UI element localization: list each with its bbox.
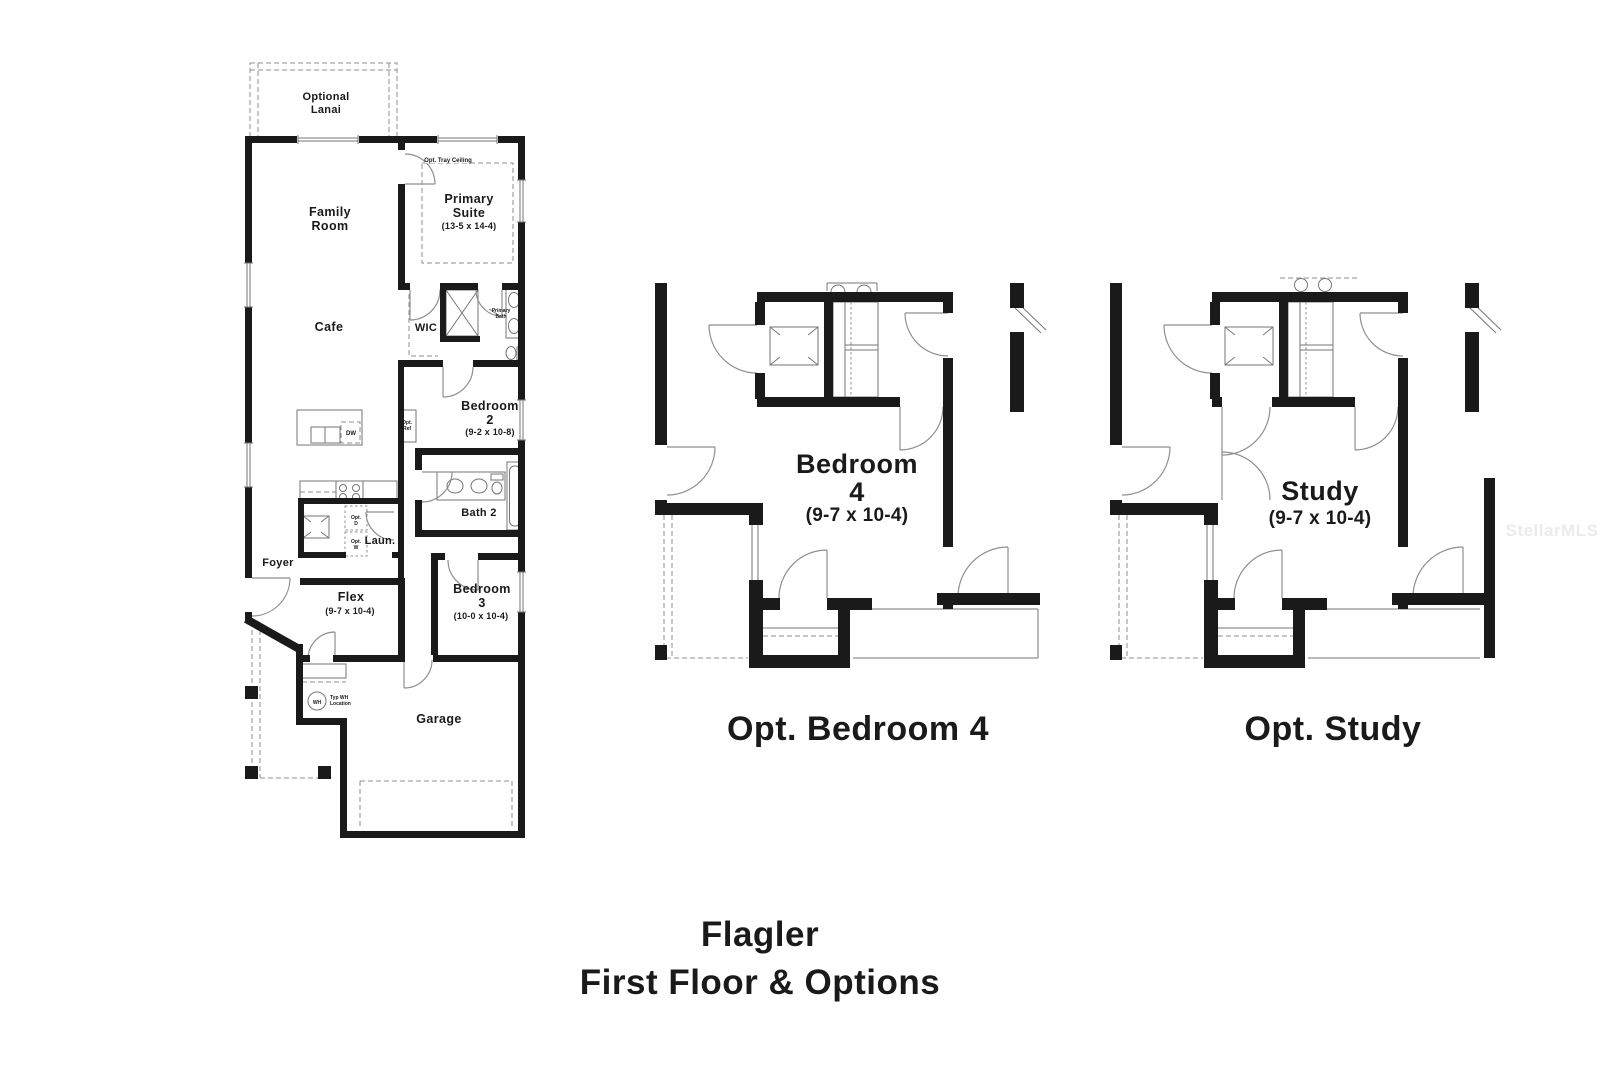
bedroom4-label2: 4 xyxy=(849,477,865,507)
porch-outline xyxy=(1113,515,1203,658)
garage-label: Garage xyxy=(416,712,461,726)
wh-note2: Location xyxy=(330,701,351,707)
bedroom3-label2: 3 xyxy=(478,596,485,610)
opt-d-label2: D xyxy=(354,521,358,527)
bedroom4-dims: (9-7 x 10-4) xyxy=(806,505,909,526)
primary-bath-label2: Bath xyxy=(495,314,506,320)
foyer-label: Foyer xyxy=(262,557,294,569)
dw-label: DW xyxy=(346,431,356,437)
floorplan-sheet: Optional Lanai Family Room Primary Suite… xyxy=(0,0,1600,1066)
cafe-label: Cafe xyxy=(315,320,344,334)
porch-outline xyxy=(658,515,748,658)
sheet-title: Flagler xyxy=(701,915,819,954)
shower xyxy=(446,290,478,336)
wic-label: WIC xyxy=(415,322,437,334)
tray-ceiling-label: Opt. Tray Ceiling xyxy=(424,158,472,164)
primary-suite-label2: Suite xyxy=(453,206,486,220)
opt-ref-label2: Ref xyxy=(403,426,411,432)
bedroom4-label: Bedroom xyxy=(796,449,918,479)
family-room-label2: Room xyxy=(311,219,348,233)
opt-study-caption: Opt. Study xyxy=(1245,710,1422,748)
primary-suite-dims: (13-5 x 14-4) xyxy=(442,221,497,231)
stellar-mls-watermark: StellarMLS xyxy=(1506,521,1599,540)
bedroom2-label2: 2 xyxy=(486,413,493,427)
bedroom3-dims: (10-0 x 10-4) xyxy=(454,611,509,621)
doors xyxy=(1122,313,1463,598)
flex-label: Flex xyxy=(338,590,365,604)
lanai-label2: Lanai xyxy=(311,104,341,116)
bedroom2-label: Bedroom xyxy=(461,399,519,413)
main-plan-labels: Optional Lanai Family Room Primary Suite… xyxy=(262,91,519,726)
study-dims: (9-7 x 10-4) xyxy=(1269,508,1372,529)
sheet-subtitle: First Floor & Options xyxy=(580,963,940,1002)
wh-label: WH xyxy=(313,700,322,706)
floorplan-drawing: Optional Lanai Family Room Primary Suite… xyxy=(0,0,1600,1066)
coat-closet-shelf xyxy=(303,516,329,538)
kitchen-island xyxy=(297,410,362,445)
opt-w-label2: W xyxy=(354,545,359,551)
bedroom3-label: Bedroom xyxy=(453,582,511,596)
opt-bedroom4-plan: Bedroom 4 (9-7 x 10-4) Opt. Bedroom 4 xyxy=(655,283,1046,748)
laundry-label: Laun. xyxy=(365,535,396,547)
garage-door-dashed xyxy=(360,781,512,829)
bath2-label: Bath 2 xyxy=(461,507,496,519)
bedroom2-dims: (9-2 x 10-8) xyxy=(465,427,514,437)
walls xyxy=(245,136,525,838)
doors xyxy=(252,154,502,688)
flex-dims: (9-7 x 10-4) xyxy=(325,606,374,616)
primary-bath-fixtures xyxy=(489,288,523,360)
study-label: Study xyxy=(1281,476,1359,506)
opt-study-plan: Study (9-7 x 10-4) Opt. Study xyxy=(1110,278,1501,748)
primary-suite-label: Primary xyxy=(444,192,493,206)
opt-bedroom4-caption: Opt. Bedroom 4 xyxy=(727,710,989,748)
main-plan: Optional Lanai Family Room Primary Suite… xyxy=(244,63,526,838)
lanai-label: Optional xyxy=(302,91,349,103)
family-room-label: Family xyxy=(309,205,351,219)
